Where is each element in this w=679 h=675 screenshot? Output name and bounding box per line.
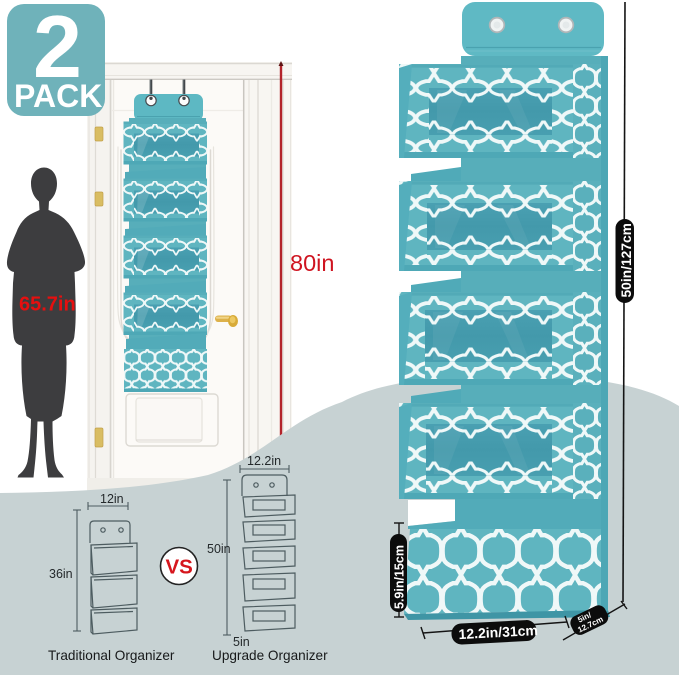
svg-text:PACK: PACK (14, 78, 102, 114)
svg-text:Upgrade Organizer: Upgrade Organizer (212, 648, 328, 663)
svg-text:50in: 50in (207, 542, 231, 556)
svg-text:12.2in: 12.2in (247, 454, 281, 468)
svg-text:65.7in: 65.7in (19, 294, 76, 316)
svg-text:36in: 36in (49, 567, 73, 581)
svg-text:12in: 12in (100, 492, 124, 506)
svg-text:5.9in/15cm: 5.9in/15cm (393, 545, 407, 609)
svg-text:80in: 80in (290, 250, 334, 276)
svg-text:5in: 5in (233, 635, 250, 649)
svg-text:50in/127cm: 50in/127cm (619, 223, 634, 297)
svg-text:Traditional Organizer: Traditional Organizer (48, 648, 175, 663)
svg-text:VS: VS (166, 556, 193, 579)
